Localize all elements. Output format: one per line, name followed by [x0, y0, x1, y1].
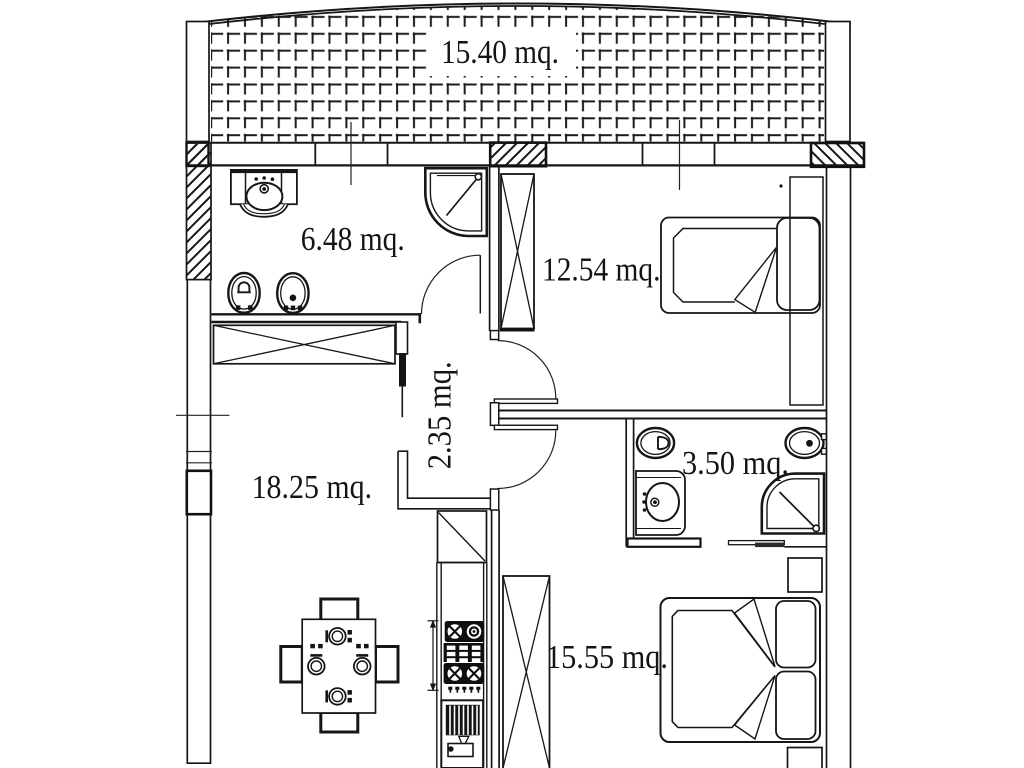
svg-text:15.55 mq.: 15.55 mq. [546, 639, 668, 676]
svg-text:18.25 mq.: 18.25 mq. [252, 469, 373, 506]
svg-text:12.54 mq.: 12.54 mq. [542, 252, 661, 289]
svg-text:6.48 mq.: 6.48 mq. [301, 221, 405, 258]
svg-text:3.50 mq.: 3.50 mq. [682, 445, 789, 482]
svg-text:15.40 mq.: 15.40 mq. [441, 34, 559, 71]
svg-text:2.35 mq.: 2.35 mq. [422, 361, 459, 469]
